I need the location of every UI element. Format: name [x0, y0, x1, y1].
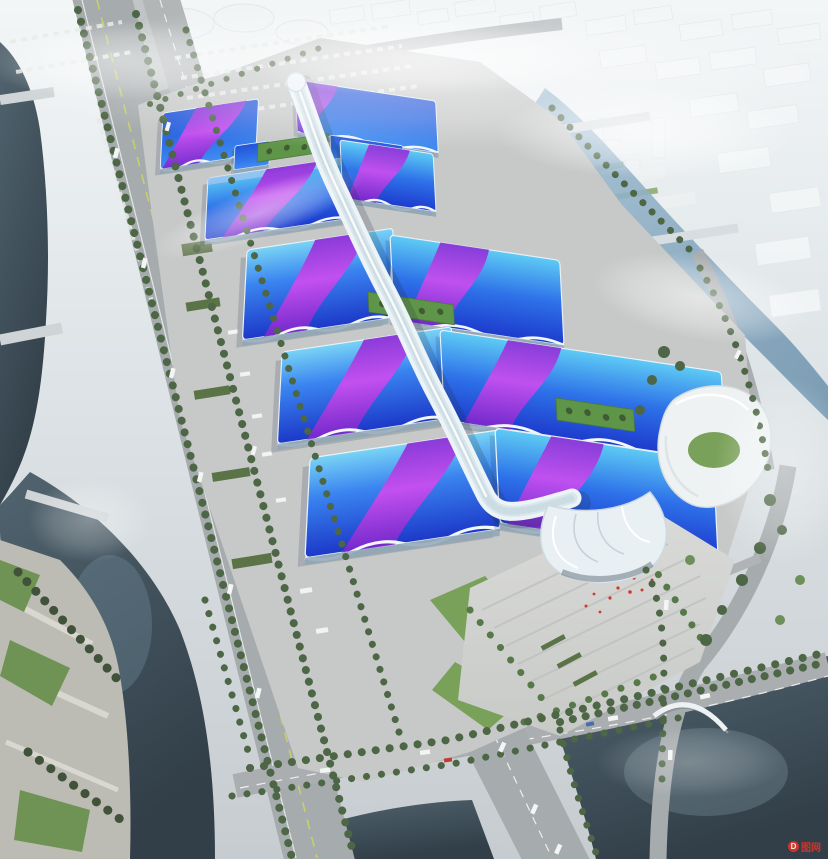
- watermark-text: 图网: [801, 839, 821, 854]
- rendering-svg: [0, 0, 828, 859]
- watermark: D 图网: [788, 839, 821, 854]
- watermark-d-logo-icon: D: [788, 841, 799, 852]
- aerial-rendering-canvas: D 图网: [0, 0, 828, 859]
